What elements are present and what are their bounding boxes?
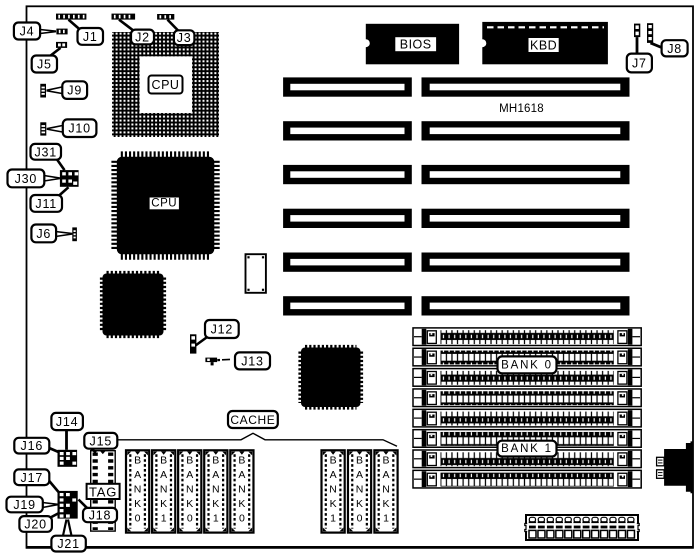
- svg-text:B: B: [238, 455, 245, 467]
- svg-text:0: 0: [239, 513, 245, 525]
- svg-text:B: B: [134, 455, 141, 467]
- svg-text:K: K: [160, 498, 167, 510]
- svg-text:MH1618: MH1618: [499, 103, 544, 115]
- svg-text:B: B: [186, 455, 193, 467]
- svg-text:B: B: [330, 455, 337, 467]
- svg-text:0: 0: [187, 513, 193, 525]
- svg-text:J17: J17: [21, 471, 44, 485]
- svg-text:J14: J14: [56, 415, 79, 429]
- svg-text:B: B: [382, 455, 389, 467]
- svg-text:K: K: [238, 498, 245, 510]
- svg-text:B: B: [212, 455, 219, 467]
- svg-text:J15: J15: [90, 434, 113, 448]
- svg-text:KBD: KBD: [530, 38, 557, 52]
- svg-text:A: A: [186, 469, 193, 481]
- svg-text:K: K: [356, 498, 363, 510]
- svg-text:N: N: [212, 484, 220, 496]
- svg-text:A: A: [134, 469, 141, 481]
- svg-text:K: K: [134, 498, 141, 510]
- svg-text:N: N: [329, 484, 337, 496]
- svg-text:J21: J21: [57, 537, 80, 551]
- svg-text:A: A: [238, 469, 245, 481]
- svg-text:N: N: [356, 484, 364, 496]
- svg-text:BIOS: BIOS: [400, 38, 432, 52]
- svg-text:J31: J31: [34, 145, 57, 159]
- svg-text:A: A: [160, 469, 167, 481]
- svg-text:N: N: [160, 484, 168, 496]
- svg-text:N: N: [382, 484, 390, 496]
- svg-text:J6: J6: [36, 227, 51, 241]
- svg-text:N: N: [134, 484, 142, 496]
- svg-text:TAG: TAG: [89, 484, 117, 499]
- svg-text:K: K: [330, 498, 337, 510]
- svg-text:BANK 1: BANK 1: [501, 443, 553, 455]
- svg-text:J20: J20: [24, 517, 47, 531]
- svg-text:J30: J30: [15, 172, 38, 186]
- svg-text:J1: J1: [83, 30, 98, 44]
- svg-text:J19: J19: [13, 498, 36, 512]
- svg-text:J18: J18: [89, 509, 112, 523]
- svg-text:J2: J2: [135, 31, 150, 45]
- svg-text:CACHE: CACHE: [230, 413, 275, 427]
- svg-text:N: N: [238, 484, 246, 496]
- svg-text:J16: J16: [21, 439, 44, 453]
- svg-text:B: B: [160, 455, 167, 467]
- svg-text:A: A: [356, 469, 363, 481]
- svg-text:J5: J5: [37, 58, 52, 72]
- svg-text:K: K: [382, 498, 389, 510]
- svg-text:CPU: CPU: [151, 198, 177, 210]
- svg-text:1: 1: [383, 513, 389, 525]
- svg-text:0: 0: [357, 513, 363, 525]
- svg-text:A: A: [382, 469, 389, 481]
- svg-text:N: N: [186, 484, 194, 496]
- svg-text:A: A: [330, 469, 337, 481]
- svg-text:1: 1: [330, 513, 336, 525]
- svg-text:1: 1: [161, 513, 167, 525]
- svg-text:J10: J10: [68, 122, 91, 136]
- svg-text:A: A: [212, 469, 219, 481]
- svg-text:J12: J12: [211, 323, 234, 337]
- svg-text:B: B: [356, 455, 363, 467]
- svg-text:BANK 0: BANK 0: [501, 359, 553, 371]
- svg-text:J3: J3: [177, 31, 192, 45]
- svg-text:0: 0: [135, 513, 141, 525]
- svg-text:CPU: CPU: [152, 78, 180, 92]
- svg-text:K: K: [186, 498, 193, 510]
- svg-text:1: 1: [213, 513, 219, 525]
- svg-text:J9: J9: [67, 84, 82, 98]
- svg-text:J7: J7: [632, 57, 647, 71]
- svg-text:K: K: [212, 498, 219, 510]
- svg-text:J11: J11: [35, 197, 57, 211]
- svg-text:J8: J8: [667, 42, 682, 56]
- svg-text:J13: J13: [241, 354, 264, 368]
- svg-text:J4: J4: [20, 25, 35, 39]
